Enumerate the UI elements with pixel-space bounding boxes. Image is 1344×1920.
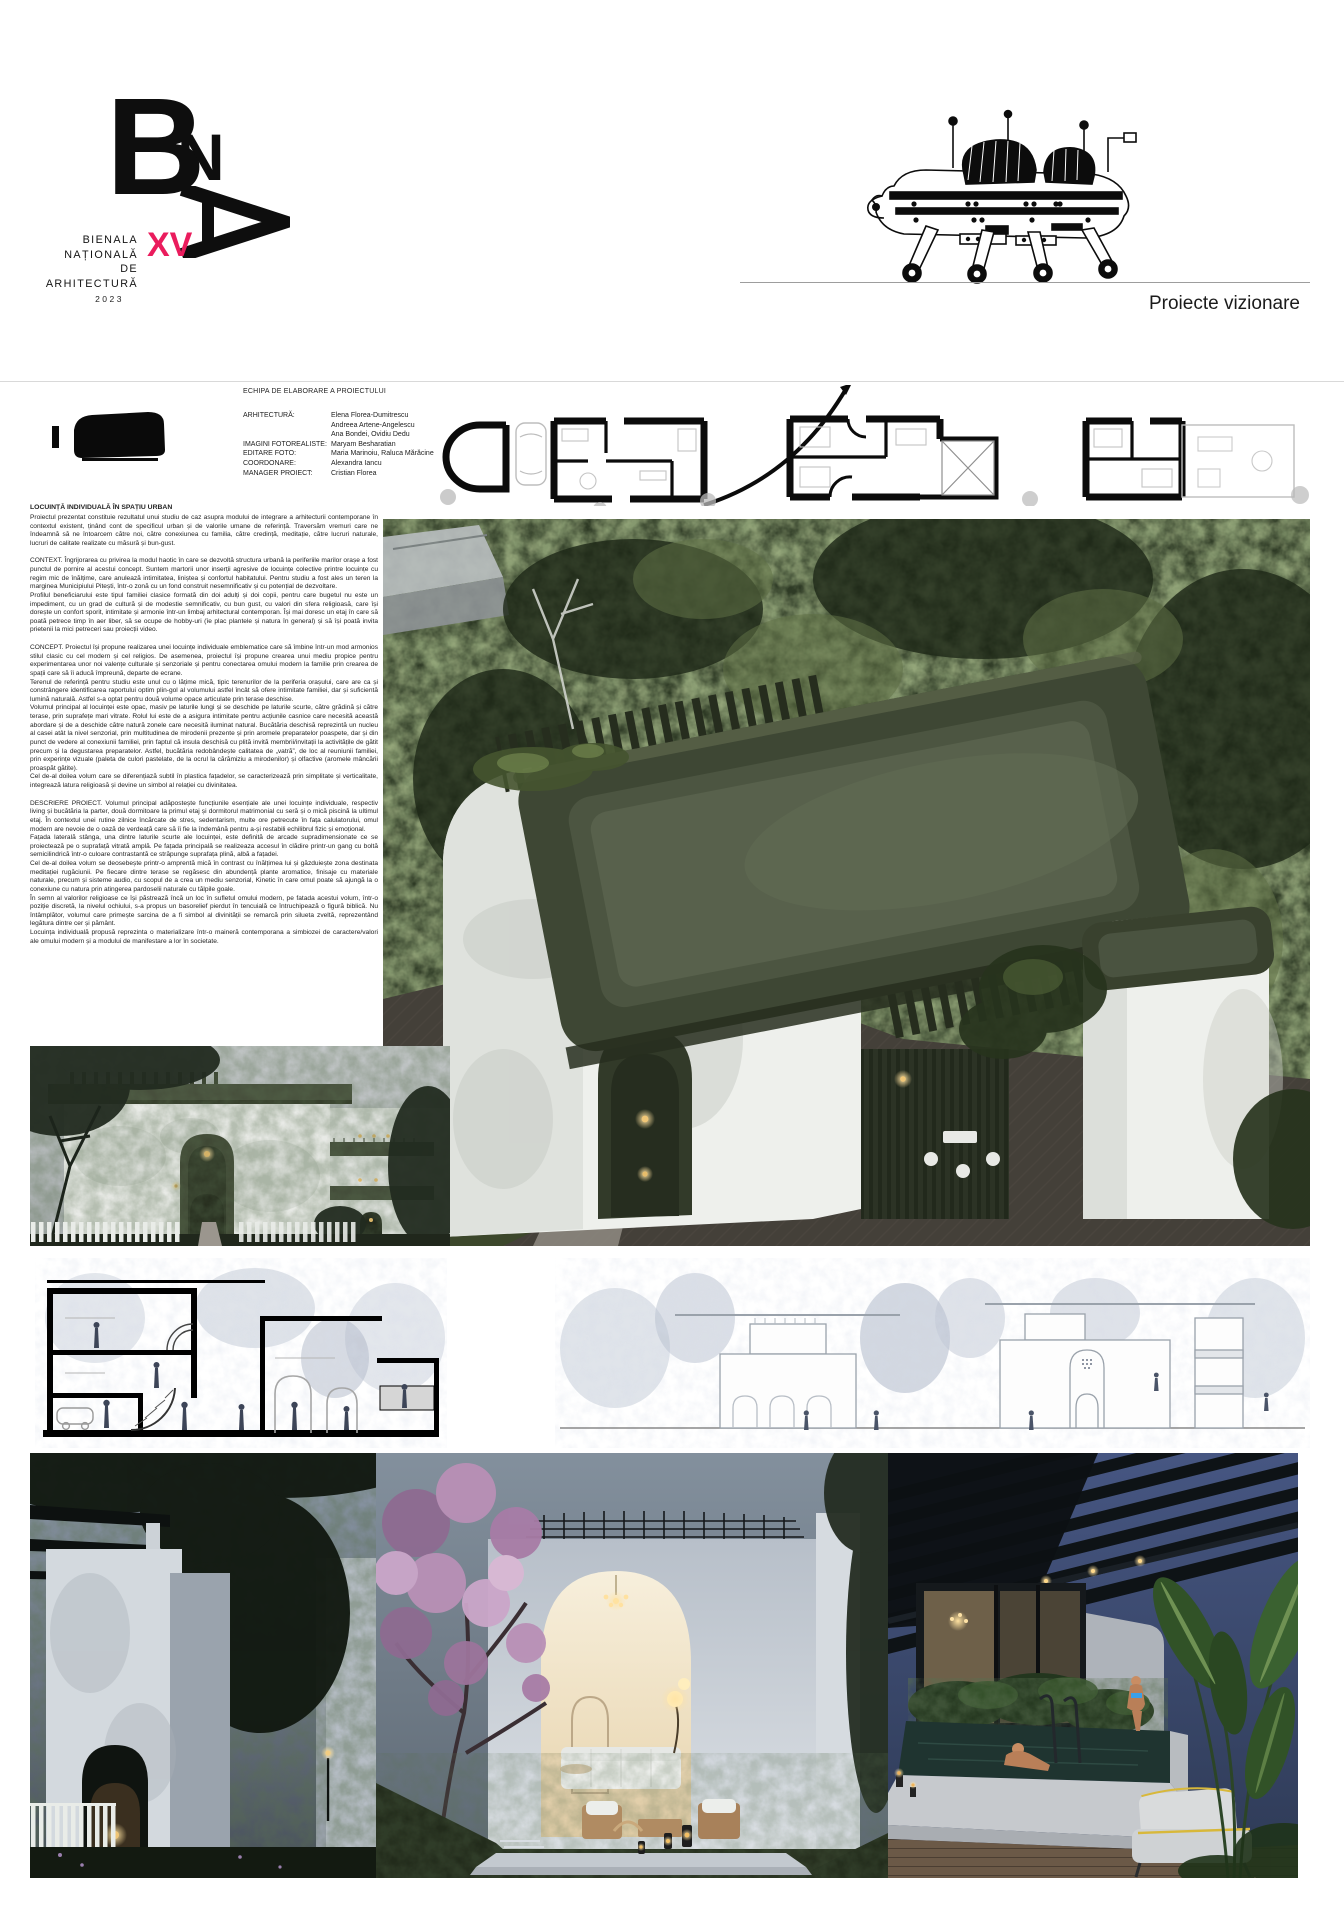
logo-letter-n: N bbox=[177, 124, 225, 190]
article-body: Proiectul prezentat constituie rezultatu… bbox=[30, 514, 378, 946]
aerial-render-image bbox=[383, 519, 1310, 1246]
article-title: LOCUINȚĂ INDIVIDUALĂ ÎN SPAȚIU URBAN bbox=[30, 504, 378, 513]
paragraph: DESCRIERE PROIECT. Volumul principal adă… bbox=[30, 800, 378, 835]
paragraph: Profilul beneficiarului este tipul famil… bbox=[30, 592, 378, 635]
credit-label bbox=[243, 421, 331, 431]
paragraph: Cel de-al doilea volum care se diferenți… bbox=[30, 773, 378, 790]
header-baseline-rule bbox=[740, 282, 1310, 283]
paragraph-group: CONCEPT. Proiectul își propune realizare… bbox=[30, 644, 378, 791]
paragraph-group: CONTEXT. Îngrijorarea cu privirea la mod… bbox=[30, 557, 378, 635]
paragraph: CONTEXT. Îngrijorarea cu privirea la mod… bbox=[30, 557, 378, 592]
paragraph-group: DESCRIERE PROIECT. Volumul principal adă… bbox=[30, 800, 378, 947]
credit-value: Alexandra Iancu bbox=[331, 459, 382, 469]
paragraph: Fațada laterală stânga, una dintre latur… bbox=[30, 834, 378, 860]
competition-board: B N BIENALA NAȚIONALĂ DE ARHITECTURĂ 202… bbox=[0, 0, 1344, 1920]
credit-label: ARHITECTURĂ: bbox=[243, 411, 331, 421]
logo-letter-a-arrow-icon bbox=[178, 186, 290, 258]
walking-machine-illustration bbox=[856, 108, 1146, 284]
credit-value: Maria Marinoiu, Raluca Mărăcine bbox=[331, 449, 434, 459]
credit-value: Andreea Artene-Angelescu bbox=[331, 421, 415, 431]
category-label: Proiecte vizionare bbox=[1000, 293, 1300, 315]
credit-value: Elena Florea-Dumitrescu bbox=[331, 411, 408, 421]
paragraph: Terenul de referință pentru studiu este … bbox=[30, 679, 378, 705]
concept-sketch-illustration bbox=[52, 404, 170, 470]
paragraph: Proiectul prezentat constituie rezultatu… bbox=[30, 514, 378, 549]
credit-label bbox=[243, 430, 331, 440]
rooftop-pool-render-image bbox=[888, 1453, 1298, 1878]
section-divider bbox=[0, 381, 1344, 382]
paragraph: În semn al valorilor religioase ce își p… bbox=[30, 895, 378, 930]
paragraph: Cel de-al doilea volum se deosebește pri… bbox=[30, 860, 378, 895]
credit-label: COORDONARE: bbox=[243, 459, 331, 469]
edition-number: XV bbox=[147, 226, 192, 265]
paragraph: Locuința individuală propusă reprezinta … bbox=[30, 929, 378, 946]
credit-label: IMAGINI FOTOREALISTE: bbox=[243, 440, 331, 450]
credit-value: Ana Bondei, Ovidiu Dedu bbox=[331, 430, 410, 440]
logo-year: 2023 bbox=[38, 294, 124, 304]
credit-value: Maryam Besharatian bbox=[331, 440, 396, 450]
arch-living-room-render-image bbox=[376, 1453, 888, 1878]
credit-label: MANAGER PROIECT: bbox=[243, 469, 331, 479]
floor-plans-row-drawing bbox=[438, 385, 1310, 506]
credit-label: EDITARE FOTO: bbox=[243, 449, 331, 459]
logo-wordmark: BIENALA NAȚIONALĂ DE ARHITECTURĂ bbox=[38, 233, 138, 291]
project-description-text: LOCUINȚĂ INDIVIDUALĂ ÎN SPAȚIU URBAN Pro… bbox=[30, 504, 378, 955]
elevations-drawing bbox=[555, 1258, 1310, 1448]
credit-value: Cristian Florea bbox=[331, 469, 377, 479]
section-drawing bbox=[35, 1258, 447, 1448]
paragraph-group: Proiectul prezentat constituie rezultatu… bbox=[30, 514, 378, 549]
night-facade-render-image bbox=[30, 1453, 376, 1878]
street-view-render-image bbox=[30, 1046, 450, 1246]
paragraph: Volumul principal al locuinței este opac… bbox=[30, 704, 378, 773]
paragraph: CONCEPT. Proiectul își propune realizare… bbox=[30, 644, 378, 679]
